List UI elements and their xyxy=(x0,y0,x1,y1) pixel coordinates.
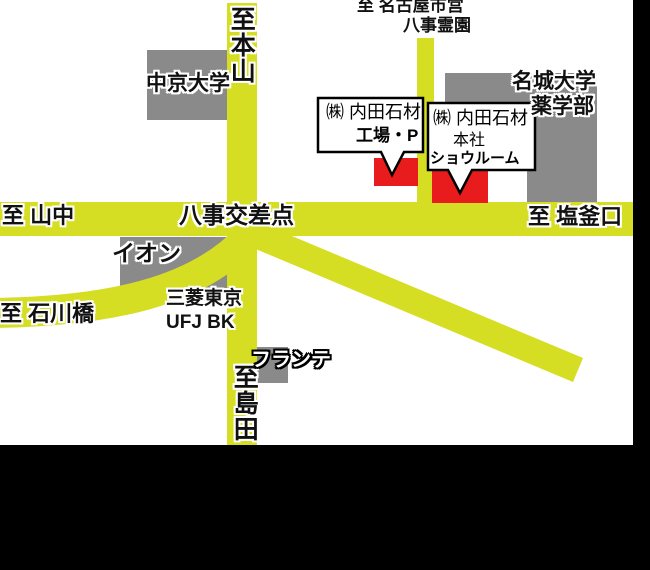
label-to-motoyama: 至本山 xyxy=(228,6,254,84)
label-to-ishikawabashi: 至 石川橋 xyxy=(0,302,94,325)
callout-hq-honsha: 本社 xyxy=(453,133,485,150)
label-yagoto-intersection: 八事交差点 xyxy=(179,203,294,227)
label-aeon: イオン xyxy=(112,241,181,265)
label-to-nagoya-cemetery-line1: 至 名古屋市営 xyxy=(357,0,464,15)
label-meijo-university-line1: 名城大学 xyxy=(512,71,596,93)
label-chukyo-university: 中京大学 xyxy=(146,73,230,95)
label-to-yamanaka: 至 山中 xyxy=(2,204,74,227)
label-to-nagoya-cemetery-line2: 八事霊園 xyxy=(403,17,471,35)
label-frante: フランテ xyxy=(251,350,331,371)
callout-hq-company: ㈱ 内田石材 xyxy=(433,109,528,128)
label-to-shimada: 至島田 xyxy=(231,364,257,442)
label-bank-line2: UFJ BK xyxy=(166,313,235,333)
label-to-shiogamaguchi: 至 塩釜口 xyxy=(528,205,622,228)
label-meijo-university-line2: 薬学部 xyxy=(531,96,594,118)
access-map: 至 名古屋市営 八事霊園 至本山 至 山中 至 塩釜口 至 石川橋 至島田 八事… xyxy=(0,0,633,445)
label-bank-line1: 三菱東京 xyxy=(166,289,242,309)
frame-bar-bottom xyxy=(0,445,650,570)
callout-factory-detail: 工場・P xyxy=(356,127,418,145)
callout-hq-showroom: ショウルーム xyxy=(430,151,520,167)
callout-factory-company: ㈱ 内田石材 xyxy=(326,103,421,122)
screenshot-frame: 至 名古屋市営 八事霊園 至本山 至 山中 至 塩釜口 至 石川橋 至島田 八事… xyxy=(0,0,650,570)
